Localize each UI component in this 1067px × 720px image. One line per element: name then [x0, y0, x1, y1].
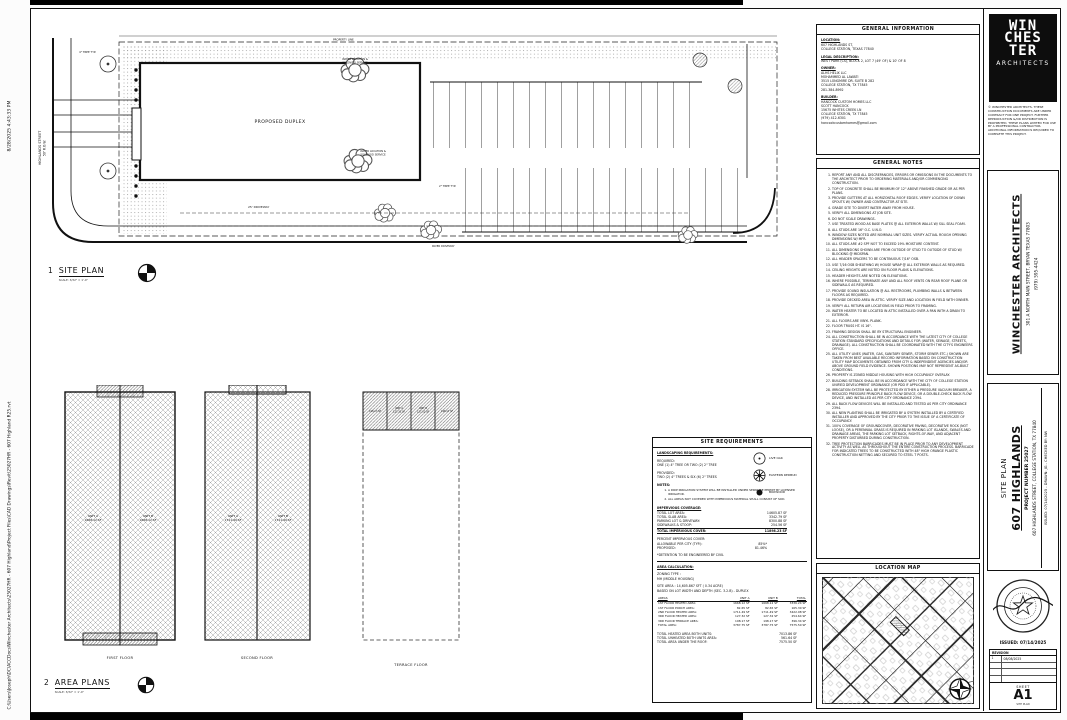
parking-lot: [430, 44, 747, 232]
general-note-item: WATER HEATER TO BE LOCATED IN ATTIC INST…: [832, 310, 975, 318]
second-floor-plan: UNIT A 1711.49 SF UNIT B 1711.49 SF SECO…: [205, 385, 310, 660]
drawing-scale: SCALE: 3/32" = 1'-0": [55, 690, 110, 694]
general-note-item: REPORT ANY AND ALL DISCREPANCIES, ERRORS…: [832, 174, 975, 186]
location-map-box: LOCATION MAP: [816, 563, 980, 709]
general-note-item: ALL NEW PLANTING SHALL BE IRRIGATED BY A…: [832, 412, 975, 424]
general-note-item: TREE PROTECTION BARRICADES MUST BE IN PL…: [832, 443, 975, 459]
general-note-item: VERIFY ALL DIMENSIONS AT JOB SITE.: [832, 212, 975, 216]
project-info-block: SITE PLAN 607 HIGHLANDS PROJECT NUMBER 2…: [987, 383, 1059, 571]
tree-cloud: [420, 221, 441, 239]
general-information-box: GENERAL INFORMATION LOCATION: 607 HIGHLA…: [816, 24, 980, 155]
general-note-item: USE TREATED WOOD AS BASE PLATES @ ALL EX…: [832, 223, 975, 227]
drawing-scale: SCALE: 3/32" = 1'-0": [59, 278, 104, 282]
general-note-item: 100% COVERAGE OF GROUNDCOVER, DECORATIVE…: [832, 425, 975, 441]
legend-label: BOXWOOD: [769, 491, 785, 495]
area-plans-drawing: UNIT A 1668.12 SF UNIT B 1668.12 SF FIRS…: [33, 385, 648, 685]
live-oak-trees: [100, 56, 116, 179]
unit-area: 127.32 SF: [393, 411, 406, 414]
legend-label: EASTERN REDBUD: [769, 474, 797, 478]
firm-name: WINCHESTER ARCHITECTS: [1011, 193, 1022, 353]
water-location-label-1b: SOLENOID SERVICE: [342, 60, 368, 64]
general-note-item: IRRIGATION SYSTEM WILL BE PROTECTED BY E…: [832, 389, 975, 401]
svg-text:50' R.O.W.: 50' R.O.W.: [42, 140, 46, 156]
location-value: 607 HIGHLANDS ST, COLLEGE STATION, TEXAS…: [821, 43, 975, 51]
water-location-label-1: WATER LOCATION &: [342, 57, 368, 61]
north-arrow-icon: [136, 675, 156, 695]
area-summary-row: TOTAL AREA UNDER THE ROOF:7575.50 SF: [657, 640, 797, 644]
sheet-number-box: SHEET A1 SITE PLAN: [989, 682, 1057, 710]
firm-logo: WIN CHES TER ARCHITECTS: [989, 14, 1057, 102]
first-floor-plan: UNIT A 1668.12 SF UNIT B 1668.12 SF FIRS…: [65, 385, 175, 660]
project-address: 607 HIGHLANDS STREET, COLLEGE STATION, T…: [1032, 420, 1037, 536]
drawing-number: 1: [48, 266, 53, 275]
firm-info-block: WINCHESTER ARCHITECTS 301 A NORTH MAIN S…: [987, 170, 1059, 375]
general-note-item: ALL HEADER SPACERS TO BE CONTINUOUS 7/16…: [832, 258, 975, 262]
top-edge-bar: [30, 0, 743, 5]
general-note-item: PROPERTY IS ZONED MIDDLE HOUSING WITH HI…: [832, 374, 975, 378]
drawing-title: SITE PLAN: [59, 266, 104, 277]
general-note-item: USE 7/16 OSB SHEATHING W/ HOUSE WRAP @ A…: [832, 264, 975, 268]
terrace-area: 198.17 SF: [441, 410, 454, 413]
driveway-label: 25' DRIVEWAY: [248, 205, 269, 209]
bottom-edge-bar: [30, 713, 743, 720]
unit-label: UNIT A: [395, 407, 403, 410]
live-oak-icon: [753, 452, 766, 465]
revision-row: [990, 663, 1056, 670]
revision-table: REVISION 108/08/2025: [989, 649, 1057, 684]
general-note-item: ALL DIMENSIONS SHOWN ARE FROM OUTSIDE OF…: [832, 249, 975, 257]
location-map-title: LOCATION MAP: [817, 564, 979, 574]
paver-driveway-label: PAVER DRIVEWAY: [432, 244, 455, 248]
left-margin-strip: C:\Users\Joseph\DC\ACCDocs\Winchester Ar…: [2, 8, 18, 711]
title-block-column: WIN CHES TER ARCHITECTS © WINCHESTER ARC…: [983, 8, 1060, 711]
builder-value: HANCOCK CUSTOM HOMES LLC SCOTT HANCOCK 1…: [821, 100, 975, 125]
water-location-label-2: WATER LOCATION &: [360, 149, 386, 153]
file-path-text: C:\Users\Joseph\DC\ACCDocs\Winchester Ar…: [7, 401, 12, 709]
legend-label: LIVE OAK: [769, 457, 783, 461]
sheet-name: SITE PLAN: [990, 703, 1056, 706]
revision-row: [990, 669, 1056, 676]
eastern-redbud-icon: [753, 469, 766, 482]
legend-live-oak: LIVE OAK: [753, 452, 805, 465]
general-note-item: DO NOT SCALE DRAWINGS.: [832, 218, 975, 222]
owner-value: ALHS HELIX LLC MOHAMMED AL LAWATI 3515 L…: [821, 71, 975, 92]
project-name: 607 HIGHLANDS: [1010, 425, 1023, 530]
general-note-item: TOP OF CONCRETE SHALL BE MINIMUM OF 12" …: [832, 188, 975, 196]
architect-seal: [993, 575, 1053, 639]
unit-area: 127.32 SF: [417, 411, 430, 414]
floor-name: FIRST FLOOR: [107, 656, 134, 660]
drawing-sheet-page: C:\Users\Joseph\DC\ACCDocs\Winchester Ar…: [0, 0, 1067, 720]
general-note-item: FLOOR TRUSS HT. IS 16".: [832, 325, 975, 329]
general-note-item: HEADER HEIGHTS ARE NOTED ON ELEVATIONS.: [832, 275, 975, 279]
unit-label: UNIT B: [419, 407, 427, 410]
general-note-item: PROVIDE SOUND INSULATION @ ALL RESTROOMS…: [832, 290, 975, 298]
revision-row: 108/08/2025: [990, 656, 1056, 663]
general-note-item: ALL FLOORS ARE VINYL PLANK.: [832, 320, 975, 324]
general-note-item: CEILING HEIGHTS ARE NOTED ON FLOOR PLANS…: [832, 269, 975, 273]
signature-scribble: [993, 598, 1053, 611]
site-requirements-title: SITE REQUIREMENTS: [653, 438, 811, 448]
landscape-band-top: [121, 44, 776, 59]
general-note-item: ALL CONSTRUCTION SHALL BE IN ACCORDANCE …: [832, 336, 975, 352]
legend-eastern-redbud: EASTERN REDBUD: [753, 469, 805, 482]
water-location-label-2b: SOLENOID SERVICE: [360, 152, 386, 156]
general-notes-list: REPORT ANY AND ALL DISCREPANCIES, ERRORS…: [821, 174, 975, 458]
entry-stoop: [132, 108, 141, 160]
sheet-number: A1: [990, 689, 1056, 703]
drawing-title: AREA PLANS: [55, 678, 110, 689]
unit-area: 1668.12 SF: [140, 518, 157, 522]
drawing-number: 2: [44, 678, 49, 687]
unit-area: 1668.12 SF: [85, 518, 102, 522]
project-number: PROJECT NUMBER 25027: [1025, 446, 1030, 510]
logo-subtext: ARCHITECTS: [989, 60, 1057, 67]
terrace-floor-plan: 198.17 SF UNIT A 127.32 SF UNIT B 127.32…: [363, 392, 459, 667]
firm-address: 301 A NORTH MAIN STREET, BRYAN TEXAS 778…: [1025, 222, 1030, 326]
copyright-text: © WINCHESTER ARCHITECTS. THESE CONSTRUCT…: [988, 106, 1058, 137]
firm-phone: (979) 595-4424: [1033, 257, 1038, 290]
plot-timestamp-text: 8/28/2025 4:43:33 PM: [7, 100, 12, 151]
terrace-area: 198.17 SF: [369, 410, 382, 413]
general-information-title: GENERAL INFORMATION: [817, 25, 979, 35]
general-note-item: ALL STUDS ARE 16" O.C. U.N.O.: [832, 229, 975, 233]
floor-name: TERRACE FLOOR: [393, 663, 428, 667]
site-requirements-box: SITE REQUIREMENTS LANDSCAPING REQUIREMEN…: [652, 437, 812, 703]
svg-text:HIGHLANDS STREET: HIGHLANDS STREET: [38, 130, 42, 165]
plant-legend: LIVE OAK EASTERN REDBUD: [753, 452, 805, 503]
unit-area: 1711.49 SF: [225, 518, 242, 522]
section-divider: [657, 561, 807, 562]
issued-date: ISSUED: 07/14/2025: [987, 640, 1059, 645]
property-line-label: PROPERTY LINE: [333, 38, 354, 42]
general-note-item: ALL STUDS ARE #2 SPF NOT TO EXCEED 19% M…: [832, 243, 975, 247]
general-notes-box: GENERAL NOTES REPORT ANY AND ALL DISCREP…: [816, 158, 980, 559]
site-plan-drawing: PROPOSED DUPLEX: [33, 28, 808, 278]
building-label: PROPOSED DUPLEX: [254, 119, 305, 125]
tree2-label: 2" TREE TYP.: [439, 184, 456, 188]
area-summary: TOTAL HEATED AREA BOTH UNITS:7013.86 SF …: [657, 632, 797, 645]
issue-drawn-checked-line: ISSUED: 07/14/2025 - DRAWN: JG - CHECKED…: [1041, 388, 1048, 568]
logo-text-line: TER: [989, 45, 1057, 57]
general-note-item: PROVIDE GUTTERS AT ALL HORIZONTAL ROOF E…: [832, 197, 975, 205]
floor-name: SECOND FLOOR: [241, 656, 273, 660]
boxwood-icon: [753, 486, 766, 499]
street-name-label: HIGHLANDS STREET 50' R.O.W.: [38, 130, 46, 165]
site-plan-title: 1 SITE PLAN SCALE: 3/32" = 1'-0": [48, 266, 104, 282]
general-note-item: FRAMING DESIGN SHALL BE BY STRUCTURAL EN…: [832, 331, 975, 335]
general-note-item: ALL UTILITY LINES (WATER, GAS, SANITARY …: [832, 353, 975, 373]
general-notes-title: GENERAL NOTES: [817, 159, 979, 169]
general-note-item: PROVIDE DECKED AREA IN ATTIC. VERIFY SIZ…: [832, 299, 975, 303]
location-map: [822, 577, 974, 704]
legend-boxwood: BOXWOOD: [753, 486, 805, 499]
general-note-item: WINDOW SIZES NOTED ARE NOMINAL UNIT SIZE…: [832, 234, 975, 242]
general-note-item: BUILDING SETBACK SHALL BE IN ACCORDANCE …: [832, 380, 975, 388]
unit-area: 1711.49 SF: [275, 518, 292, 522]
area-table: AREAS UNIT A UNIT B TOTAL 1ST FLOOR HEAT…: [657, 596, 807, 628]
area-plans-title: 2 AREA PLANS SCALE: 3/32" = 1'-0": [44, 678, 110, 694]
impervious-list: TOTAL LOT AREA:14605.87 SF TOTAL SLAB AR…: [657, 511, 787, 528]
north-arrow-icon: [136, 262, 158, 284]
sheet-title-text: SITE PLAN: [1000, 458, 1008, 498]
general-note-item: VERIFY ALL RETURN AIR LOCATIONS IN FIELD…: [832, 305, 975, 309]
general-note-item: GRADE SITE TO DIVERT WATER AWAY FROM HOU…: [832, 207, 975, 211]
detention-note: *DETENTION TO BE ENGINEERED BY CIVIL: [657, 553, 807, 557]
general-note-item: WHERE POSSIBLE, TERMINATE ANY AND ALL RO…: [832, 280, 975, 288]
general-note-item: ALL BACK FLOW DEVICES WILL BE INSTALLED …: [832, 403, 975, 411]
tree4-label: 4" TREE TYP.: [79, 50, 96, 54]
